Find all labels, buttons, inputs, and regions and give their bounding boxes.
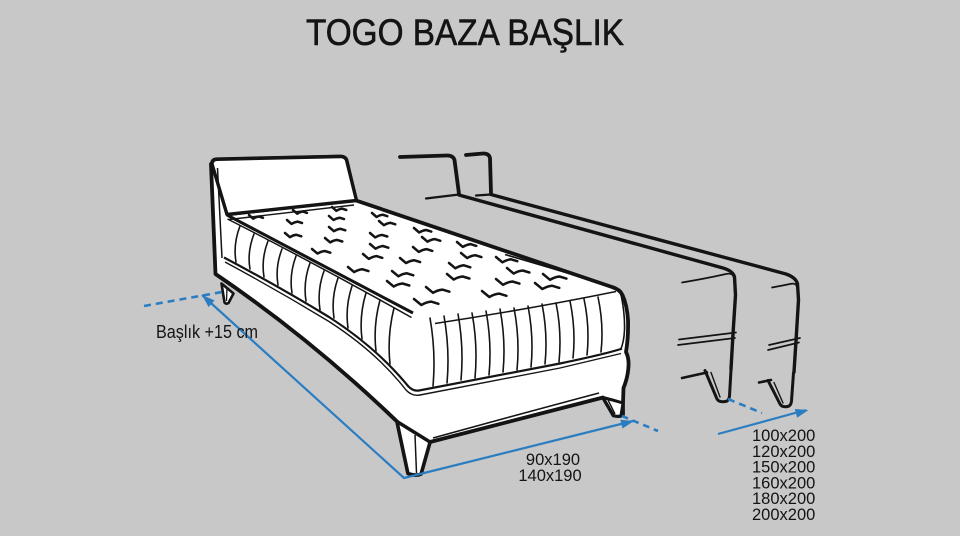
- svg-text:Başlık +15 cm: Başlık +15 cm: [156, 322, 258, 342]
- svg-text:TOGO BAZA BAŞLIK: TOGO BAZA BAŞLIK: [306, 11, 624, 53]
- svg-text:140x190: 140x190: [518, 467, 581, 485]
- svg-text:200x200: 200x200: [752, 506, 815, 524]
